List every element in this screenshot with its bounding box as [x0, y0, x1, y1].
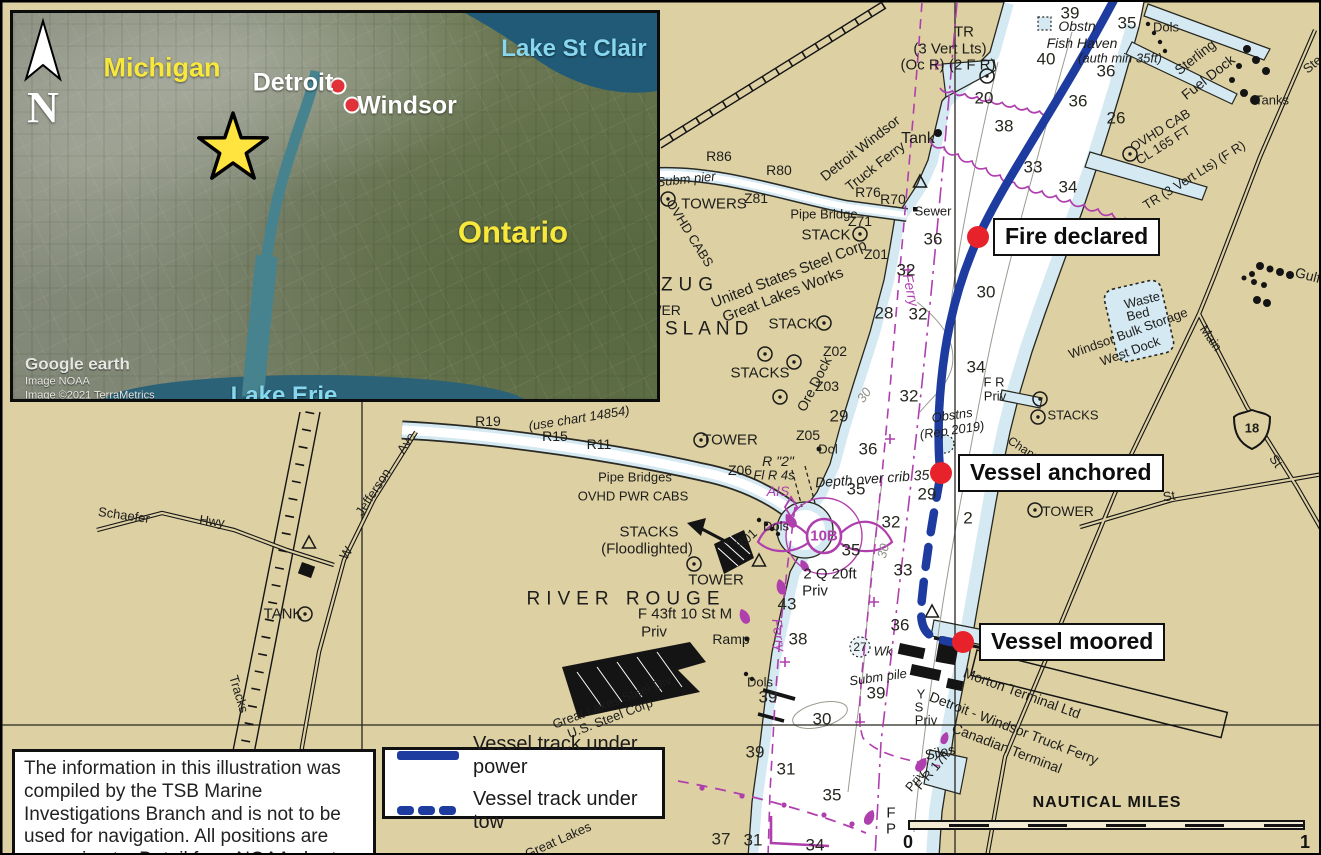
north-letter: N [27, 86, 59, 130]
inset-place-label: Detroit [253, 71, 334, 96]
solid-track-swatch [397, 751, 461, 760]
inset-satellite-map: N MichiganOntarioDetroitWindsorLake St C… [10, 10, 660, 402]
illustration-canvas: TR(3 Vert Lts)(Oc R) (2 F R)TankR86R80Z8… [0, 0, 1321, 855]
event-marker-label: Fire declared [993, 218, 1160, 256]
event-marker-label: Vessel anchored [958, 454, 1164, 492]
inset-place-label: Michigan [103, 55, 220, 82]
inset-imagery-credit: Image NOAA [25, 377, 90, 388]
detroit-river-lower [253, 256, 267, 397]
inset-place-label: Lake St Clair [501, 37, 646, 61]
inset-place-label: Lake Erie [231, 384, 338, 402]
legend-row: Vessel track under power [397, 733, 650, 779]
scalebar-zero: 0 [903, 832, 913, 853]
event-marker-dot [967, 226, 989, 248]
north-arrow-icon [26, 21, 60, 79]
track-legend: Vessel track under powerVessel track und… [382, 747, 665, 819]
inset-imagery-credit: Google earth [25, 356, 130, 373]
dashed-track-swatch [397, 806, 461, 815]
event-marker-dot [930, 462, 952, 484]
event-marker-label: Vessel moored [979, 623, 1165, 661]
inset-place-label: Ontario [458, 217, 568, 248]
scalebar-one: 1 [1300, 832, 1310, 853]
disclaimer-box: The information in this illustration was… [12, 749, 376, 855]
legend-label: Vessel track under tow [473, 788, 650, 834]
inset-place-label: Windsor [357, 94, 457, 119]
inset-imagery-credit: Image ©2021 TerraMetrics [25, 391, 155, 402]
event-marker-dot [952, 631, 974, 653]
scalebar-title: NAUTICAL MILES [1033, 794, 1182, 812]
legend-label: Vessel track under power [473, 733, 650, 779]
scalebar [908, 820, 1305, 830]
occurrence-star [199, 113, 267, 178]
legend-row: Vessel track under tow [397, 788, 650, 834]
